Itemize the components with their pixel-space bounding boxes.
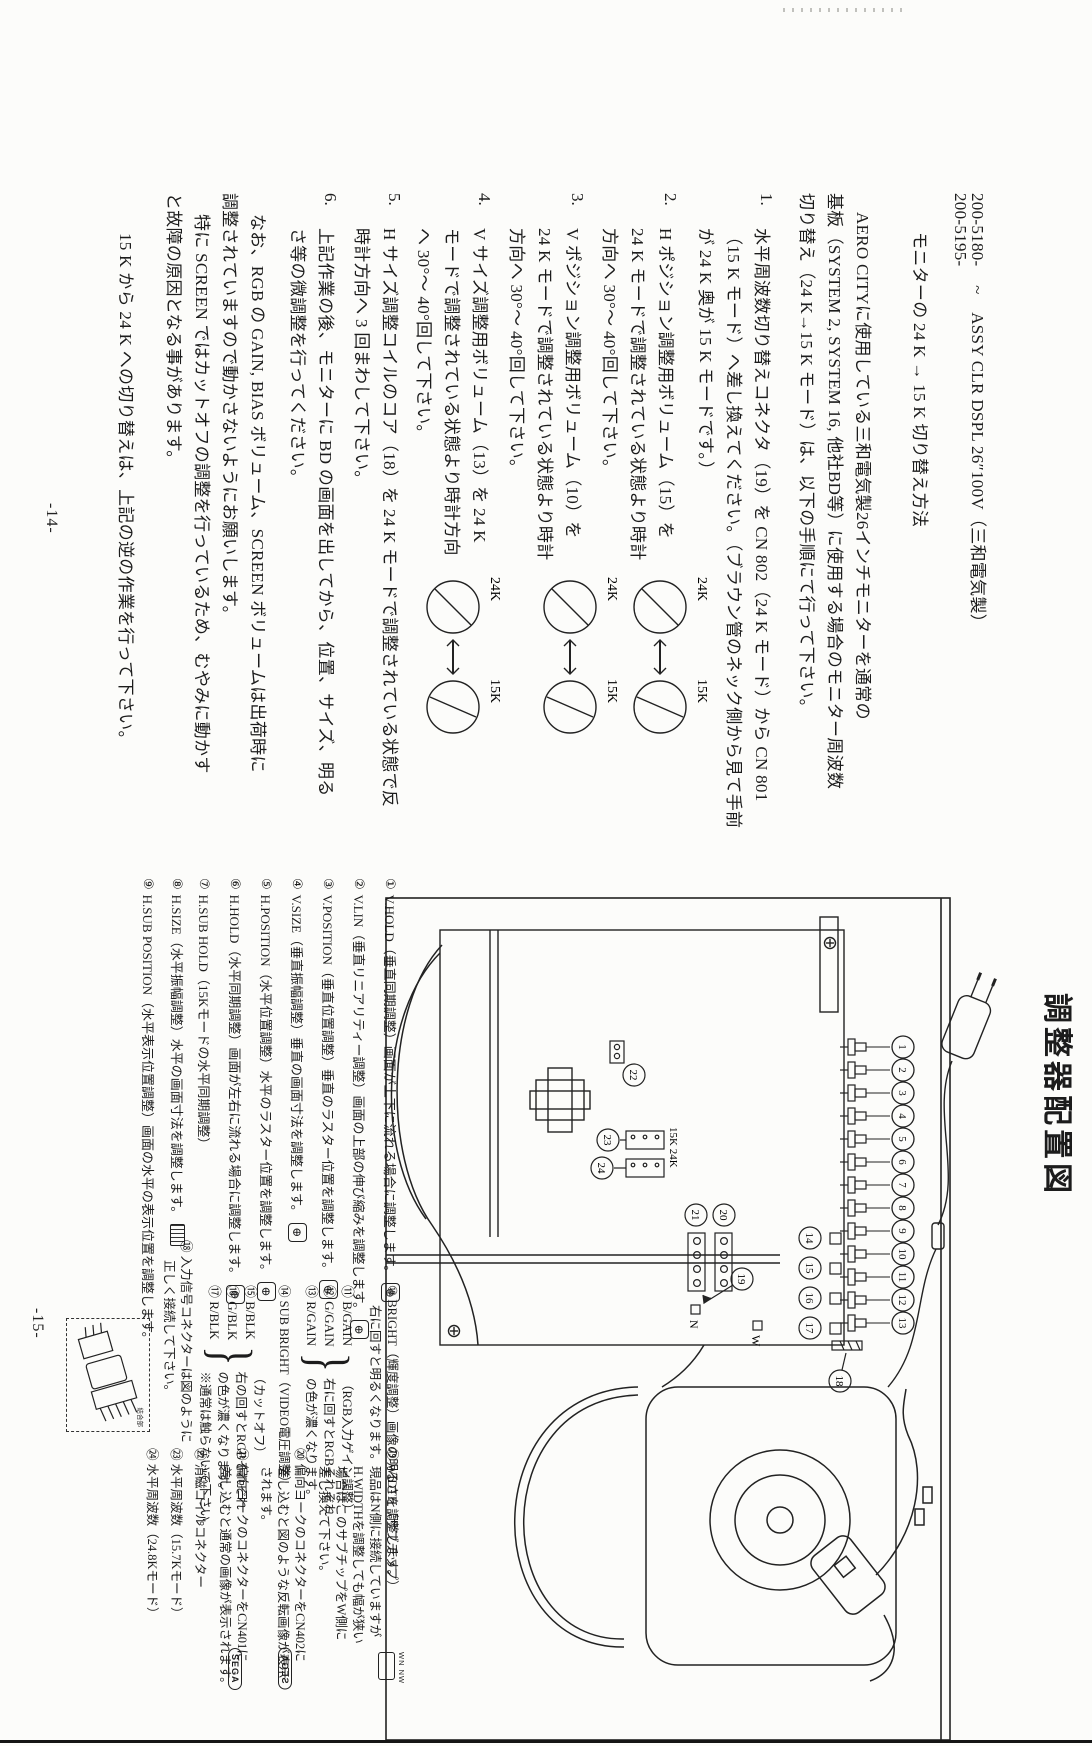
knob-rotation-figure: 24K 15K: [624, 555, 714, 770]
annotation-text: ⑮ B/BLK: [241, 1285, 259, 1340]
step-number: 3.: [567, 193, 587, 206]
tilde: ~: [968, 271, 987, 309]
knob-rotation-figure: 24K 15K: [417, 555, 507, 770]
sega-badge-mirrored: SEGA: [278, 1648, 292, 1690]
annotation-number: ⑳: [293, 1448, 307, 1461]
annotation-text: されます。: [257, 1448, 274, 1679]
step-number: 2.: [660, 193, 680, 206]
annotation-item-19: ⑲ WIDTH（サブチップ） 現品はN側に接続していますが H.WIDTHを調整…: [315, 1448, 400, 1644]
annotation-number: ⑭: [277, 1285, 291, 1298]
step-line: V ポジション調整用ボリューム（10）を: [562, 228, 587, 539]
annotation-text: 入力信号コネクターは図のように: [179, 1256, 193, 1443]
annotation-item: ③ V.POSITION（垂直位置調整）垂直のラスター位置を調整します。: [319, 878, 338, 1299]
svg-text:6: 6: [896, 1159, 908, 1165]
assembly-title: ASSY CLR DSPL 26″100V（三和電気製）: [968, 312, 987, 631]
annotation-item: ④ V.SIZE（垂直振幅調整）垂直の画面寸法を調整します。: [288, 878, 307, 1242]
subtitle: モニターの 24 K → 15 K 切り替え方法: [909, 232, 934, 527]
connector-detail-box: 結合部: [66, 1318, 150, 1432]
step-number: 1.: [756, 193, 776, 206]
gain-labels: ⑪ B/GAIN ⑫ G/GAIN ⑬ R/GAIN: [302, 1285, 356, 1347]
scanned-manual-page: 200-5180- ~ ASSY CLR DSPL 26″100V（三和電気製）…: [0, 0, 1092, 1746]
page-number-15: -15-: [28, 1308, 46, 1339]
step-line: 上記作業の後、モニターに BD の画面を出してから、位置、サイズ、明る: [315, 228, 340, 797]
pot-adjuster-icon: [288, 1223, 307, 1242]
step-line: へ 30°〜 40°回して下さい。: [413, 228, 438, 442]
svg-text:5: 5: [896, 1136, 908, 1142]
svg-text:11: 11: [896, 1272, 908, 1283]
callout-number-21: 21: [689, 1210, 701, 1221]
note-line: 特に SCREEN ではカットオフの調整を行っているため、むやみに動かす: [191, 214, 216, 774]
step-line: 水平周波数切り替えコネクタ（19）を CN 802（24 K モード）から CN…: [751, 228, 776, 802]
svg-text:16: 16: [803, 1293, 815, 1305]
knob-circles-icon: [634, 581, 686, 733]
annotation-number: ⑦: [197, 878, 213, 890]
annotation-text: 差し換えて下さい。: [315, 1448, 332, 1644]
svg-text:17: 17: [803, 1323, 815, 1335]
callout-number-23: 23: [601, 1135, 613, 1147]
svg-text:4: 4: [896, 1113, 908, 1119]
annotation-text: ⑪ B/GAIN: [338, 1285, 356, 1347]
knob-label-24k: 24K: [694, 577, 709, 601]
annotation-text: 場合はこのサブチップをW側に: [332, 1448, 349, 1644]
sega-badge: SEGA: [228, 1648, 242, 1690]
brace: }: [295, 1351, 363, 1374]
width-subchip-icon: [378, 1652, 395, 1680]
step-line: 24 K モードで調整されている状態より時計: [627, 228, 652, 561]
knob-label-24k: 24K: [487, 577, 502, 601]
brace: }: [198, 1344, 266, 1367]
annotation-text: V.LIN（垂直リニアリティー調整）画面の上部の伸び縮みを調整します。: [350, 895, 369, 1316]
svg-text:8: 8: [896, 1205, 908, 1211]
annotation-text: 消磁コイルコネクター: [193, 1464, 207, 1588]
intro-line: 基板（SYSTEM 2, SYSTEM 16, 他社BD等）に使用する場合のモニ…: [824, 193, 849, 789]
blk-labels: ⑮ B/BLK ⑯ G/BLK ⑰ R/BLK: [205, 1285, 259, 1340]
annotation-item: ⑦ H.SUB HOLD（15Kモードの水平同期調整）: [195, 878, 214, 1150]
annotation-item: ⑥ H.HOLD（水平同期調整）画面が左右に流れる場合に調整します。: [226, 878, 245, 1304]
note-line: 調整されていますので動かさないようにお願いします。: [219, 193, 244, 623]
scan-artifact: [782, 8, 902, 12]
intro-line: 切り替え（24 K→15 K モード）は、以下の手順にて行って下さい。: [796, 193, 821, 716]
annotation-text: ⑯ G/BLK: [223, 1285, 241, 1340]
svg-text:13: 13: [896, 1318, 908, 1330]
part-number-2: 200-5195-: [950, 193, 970, 267]
annotation-text: H.POSITION（水平位置調整）水平のラスター位置を調整します。: [257, 895, 276, 1277]
annotation-text: V.HOLD（垂直同期調整）画面が上下に流れる場合に調整します。: [381, 895, 400, 1279]
closing-line: 15 K から 24 K への切り替えは、上記の逆の作業を行って下さい。: [115, 233, 140, 748]
annotation-number: ㉑: [235, 1448, 249, 1461]
label-n: N: [687, 1320, 701, 1329]
annotation-text: ⑫ G/GAIN: [320, 1285, 338, 1347]
wire-bundles: [391, 945, 704, 1647]
part-number-1: 200-5180-: [968, 193, 987, 267]
annotation-item-23: ㉓ 水平周波数（15.7Kモード）: [167, 1448, 184, 1620]
annotation-number: ③: [321, 878, 337, 890]
annotation-item: ⑧ H.SIZE（水平振幅調整）水平の画面寸法を調整します。: [168, 878, 187, 1246]
annotation-text: 水平周波数（15.7Kモード）: [169, 1464, 183, 1620]
knob-label-24k: 24K: [604, 577, 619, 601]
annotation-number: ⑨: [141, 878, 157, 890]
step-number: 5.: [384, 193, 404, 206]
annotation-item: ① V.HOLD（垂直同期調整）画面が上下に流れる場合に調整します。: [381, 878, 400, 1302]
annotation-number: ⑲: [385, 1448, 399, 1461]
chassis-layout-diagram: 1 2 3 4 5 6 7 8 9 10 11 12 13: [378, 875, 1034, 1745]
step-number: 4.: [474, 193, 494, 206]
annotation-item-18: ⑱ 入力信号コネクターは図のように 正しく接続して下さい。: [160, 1240, 194, 1443]
callout-number-18: 18: [833, 1376, 845, 1388]
intro-line: AERO CITYに使用している三和電気製26インチモニターを通常の: [852, 212, 877, 720]
step-line: （15 K モード）へ差し換えてください。（ブラウン管のネック側から見て手前: [723, 228, 748, 828]
annotation-number: ㉓: [169, 1448, 183, 1461]
annotation-text: H.HOLD（水平同期調整）画面が左右に流れる場合に調整します。: [226, 895, 245, 1280]
connector-box-label: 結合部: [136, 1408, 146, 1428]
callout-number-20: 20: [717, 1210, 729, 1222]
annotation-text: H.SUB POSITION（水平表示位置調整）画面の水平の表示位置を調整します…: [139, 895, 158, 1345]
callout-19-subchip: [691, 1268, 762, 1330]
annotation-number: ⑱: [179, 1240, 193, 1253]
annotation-number: ②: [352, 878, 368, 890]
crt-assembly: [646, 1387, 932, 1681]
annotation-item-20: ⑳ 偏向ヨークのコネクターをCN402に 差し込むと図のような反転画像が表示 さ…: [257, 1448, 308, 1679]
svg-text:10: 10: [896, 1249, 908, 1261]
callout-number-19: 19: [735, 1274, 747, 1286]
annotation-number: ⑩: [385, 1285, 399, 1296]
annotation-item: ⑤ H.POSITION（水平位置調整）水平のラスター位置を調整します。: [257, 878, 276, 1301]
annotation-item: ⑨ H.SUB POSITION（水平表示位置調整）画面の水平の表示位置を調整し…: [139, 878, 158, 1345]
annotation-text: 水平周波数（24.8Kモード）: [145, 1464, 159, 1620]
step-line: 方向へ 30°〜 40°回して下さい。: [599, 228, 624, 476]
annotation-text: V.POSITION（垂直位置調整）垂直のラスター位置を調整します。: [319, 895, 338, 1276]
annotation-text: H.SUB HOLD（15Kモードの水平同期調整）: [195, 895, 214, 1151]
svg-text:7: 7: [896, 1182, 908, 1188]
diagram-title: 調整器配置図: [1038, 993, 1082, 1197]
callout-leaders: [866, 1047, 890, 1323]
annotation-number: ⑥: [228, 878, 244, 890]
knob-circles-icon: [427, 581, 479, 733]
svg-text:15: 15: [803, 1263, 815, 1275]
step-line: H ポジション調整用ボリューム（15）を: [655, 228, 680, 539]
annotation-number: ⑤: [259, 878, 275, 890]
svg-text:3: 3: [896, 1090, 908, 1096]
step-line: 24 K モードで調整されている状態より時計: [534, 228, 559, 561]
step-line: 方向へ 30°〜 40°回して下さい。: [506, 228, 531, 476]
annotation-text: H.SIZE（水平振幅調整）水平の画面寸法を調整します。: [168, 895, 187, 1220]
annotation-text: H.WIDTHを調整しても幅が狭い: [349, 1448, 366, 1644]
svg-text:14: 14: [803, 1233, 815, 1245]
svg-text:9: 9: [896, 1228, 908, 1234]
knob-label-15k: 15K: [487, 679, 502, 703]
step-line: さ等の微調整を行ってください。: [287, 228, 312, 486]
knob-circles-icon: [544, 581, 596, 733]
annotation-text: 現品はN側に接続していますが: [366, 1448, 383, 1644]
knob-label-15k: 15K: [694, 679, 709, 703]
freq-labels: 15K 24K: [667, 1127, 679, 1168]
label-w: W: [749, 1335, 763, 1347]
step-line: 時計方向へ 3 回まわして下さい。: [351, 228, 376, 488]
annotation-text: ⑰ R/BLK: [205, 1285, 223, 1340]
step-line: が 24 K 奥が 15 K モードです。）: [695, 228, 720, 478]
step-line: モードで調整されている状態より時計方向: [441, 228, 466, 556]
step-line: V サイズ調整用ボリューム（13）を 24 K: [469, 228, 494, 543]
annotation-text: 偏向ヨークのコネクターをCN402に: [293, 1464, 307, 1662]
annotation-number: ㉔: [145, 1448, 159, 1461]
part-number-line: 200-5180- ~ ASSY CLR DSPL 26″100V（三和電気製）: [967, 193, 992, 631]
svg-text:1: 1: [896, 1044, 908, 1050]
callout-number-22: 22: [627, 1070, 639, 1081]
annotation-text: 正しく接続して下さい。: [160, 1240, 177, 1443]
annotation-text: V.SIZE（垂直振幅調整）垂直の画面寸法を調整します。: [288, 895, 307, 1218]
annotation-number: ④: [290, 878, 306, 890]
annotation-text: WIDTH（サブチップ）: [385, 1463, 399, 1592]
annotation-number: ㉒: [193, 1448, 207, 1461]
knob-rotation-figure: 24K 15K: [534, 555, 624, 770]
annotation-number: ①: [383, 878, 399, 890]
scan-edge-line: [0, 1740, 1092, 1743]
rotated-sheet: 200-5180- ~ ASSY CLR DSPL 26″100V（三和電気製）…: [0, 0, 1092, 1746]
knob-label-15k: 15K: [604, 679, 619, 703]
svg-text:2: 2: [896, 1067, 908, 1073]
step-line: H サイズ調整コイルのコア（18）を 24 K モードで調整されている状態で反: [379, 228, 404, 807]
svg-text:12: 12: [896, 1295, 908, 1306]
subchip-positions-label: WN NW: [397, 1652, 406, 1684]
annotation-text: ⑬ R/GAIN: [302, 1285, 320, 1347]
annotation-number: ⑧: [170, 878, 186, 890]
annotation-item: ② V.LIN（垂直リニアリティー調整）画面の上部の伸び縮みを調整します。: [350, 878, 369, 1339]
page-number-14: -14-: [42, 503, 60, 534]
note-line: と故障の原因となる事があります。: [163, 193, 188, 468]
note-line: なお、RGB の GAIN, BIAS ボリューム、SCREEN ボリュームは出…: [247, 214, 272, 773]
annotation-item-22: ㉒ 消磁コイルコネクター: [191, 1448, 208, 1588]
annotation-text: 差し込むと図のような反転画像が表示: [274, 1448, 291, 1679]
callout-number-24: 24: [595, 1163, 607, 1175]
annotation-item-24: ㉔ 水平周波数（24.8Kモード）: [143, 1448, 160, 1620]
annotation-text: 偏向ヨークのコネクターをCN401に: [235, 1464, 249, 1662]
step-number: 6.: [320, 193, 340, 206]
